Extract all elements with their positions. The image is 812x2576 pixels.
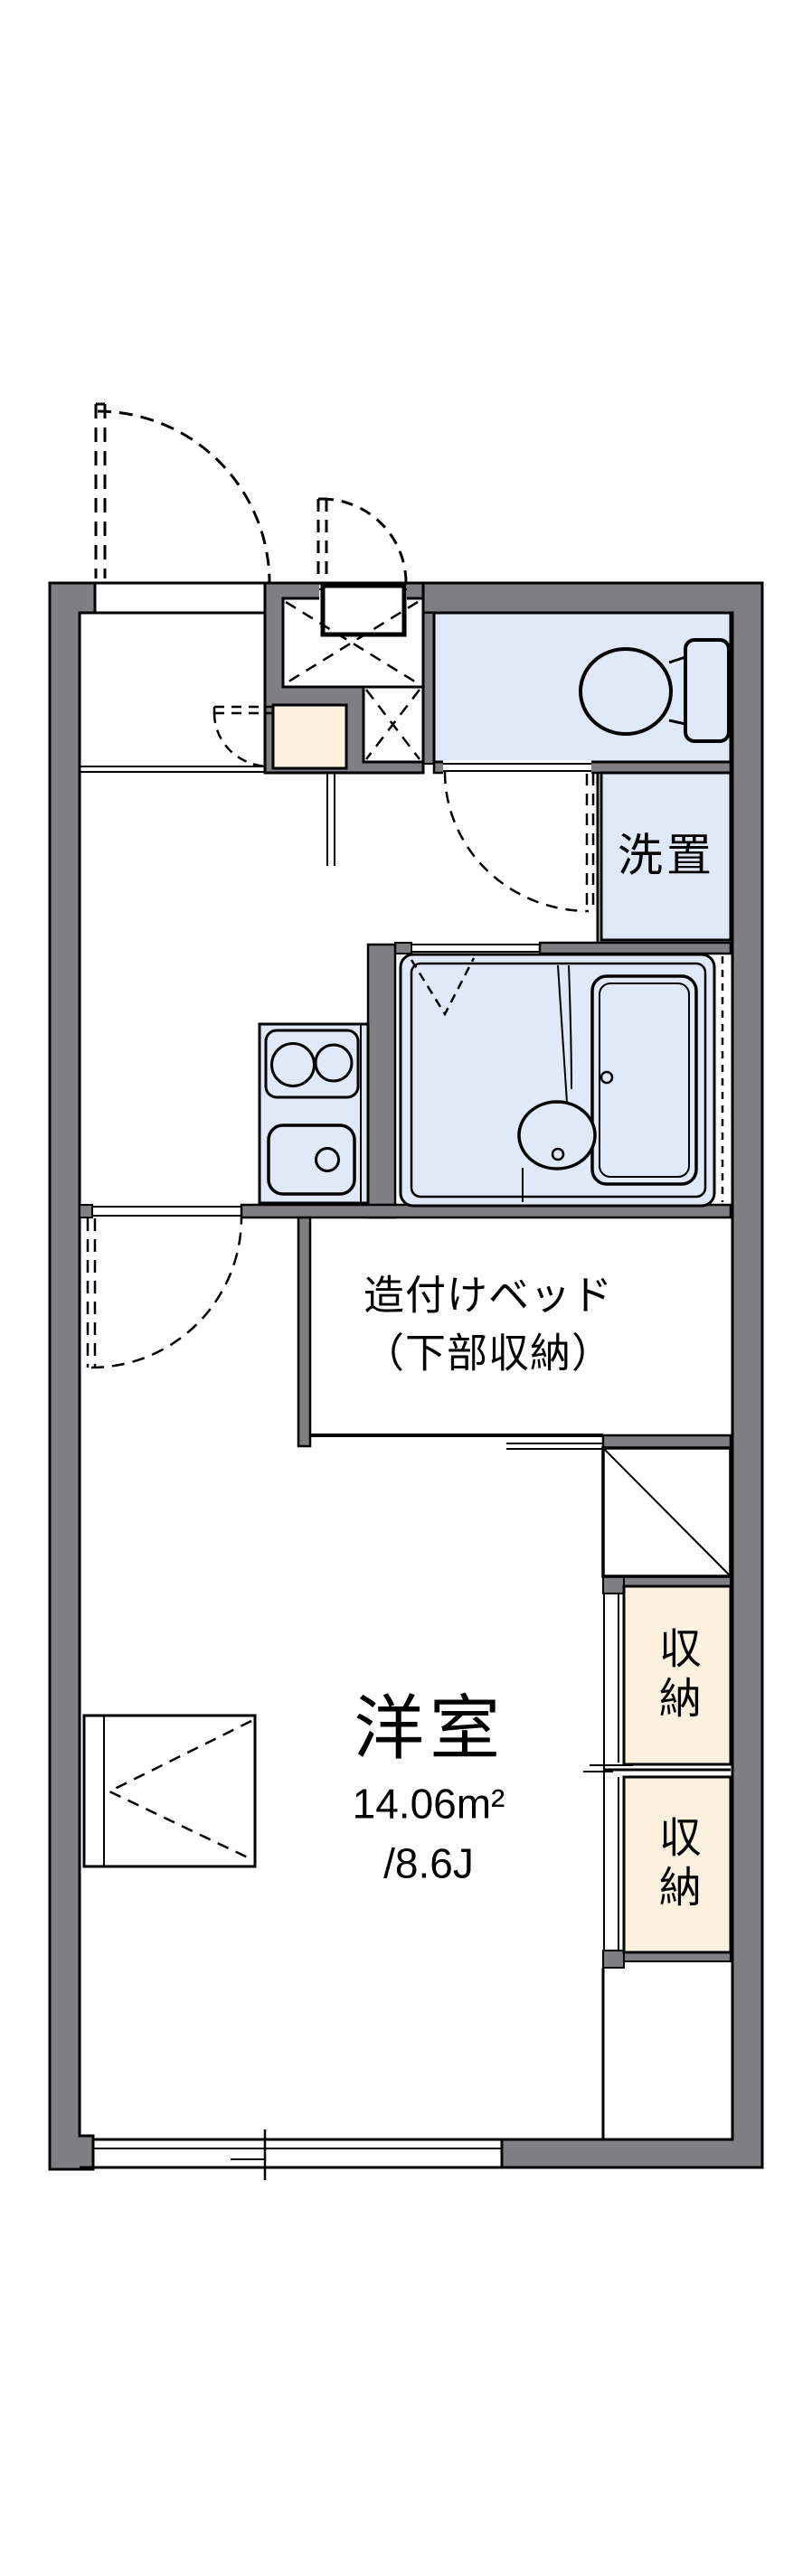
toilet-door-swing	[445, 772, 593, 911]
wall-closet-bottom-jut	[603, 1951, 624, 1968]
shoe-cabinet	[273, 705, 346, 768]
balcony-window	[80, 2129, 502, 2180]
fridge-space	[603, 1448, 731, 1576]
wall-left	[50, 583, 95, 2169]
top-openings	[95, 404, 406, 613]
room-area-m2: 14.06m²	[353, 1782, 505, 1828]
built-in-bed-label: 造付けベッド	[364, 1273, 613, 1318]
counter-unit	[84, 1716, 255, 1866]
entrance-door	[323, 586, 404, 635]
small-door-swing	[318, 499, 406, 583]
wall-bathroom-top	[540, 943, 731, 954]
closet-lower-label: 収納	[653, 1815, 700, 1914]
room-door	[88, 1207, 241, 1368]
kitchen	[260, 1024, 368, 1203]
main-door-swing	[96, 404, 269, 583]
wall-toilet-left	[423, 613, 434, 764]
wall-mid-band-stub	[80, 1205, 92, 1217]
room-label: 洋室	[354, 1690, 505, 1768]
bed-nook	[310, 1435, 603, 1449]
wall-kitchen-bath-divider	[368, 945, 395, 1217]
bathroom	[401, 945, 722, 1206]
room-area-tatami: /8.6J	[383, 1841, 474, 1887]
wall-bed-bottom	[603, 1435, 731, 1448]
closet-upper-label: 収納	[653, 1626, 700, 1725]
laundry-label: 洗置	[618, 832, 715, 881]
room-door-swing	[88, 1217, 241, 1368]
wall-bathroom-top-left	[395, 943, 411, 954]
entrance-area	[80, 583, 423, 866]
wall-closet-top-jut	[603, 1576, 624, 1594]
wall-bed-left	[298, 1217, 310, 1446]
floor-plan: 洗置 造付けベッド （下部収納） 洋室 14.06m² /8.6J 収納 収納	[0, 0, 812, 2576]
bed-storage-note: （下部収納）	[364, 1330, 613, 1376]
